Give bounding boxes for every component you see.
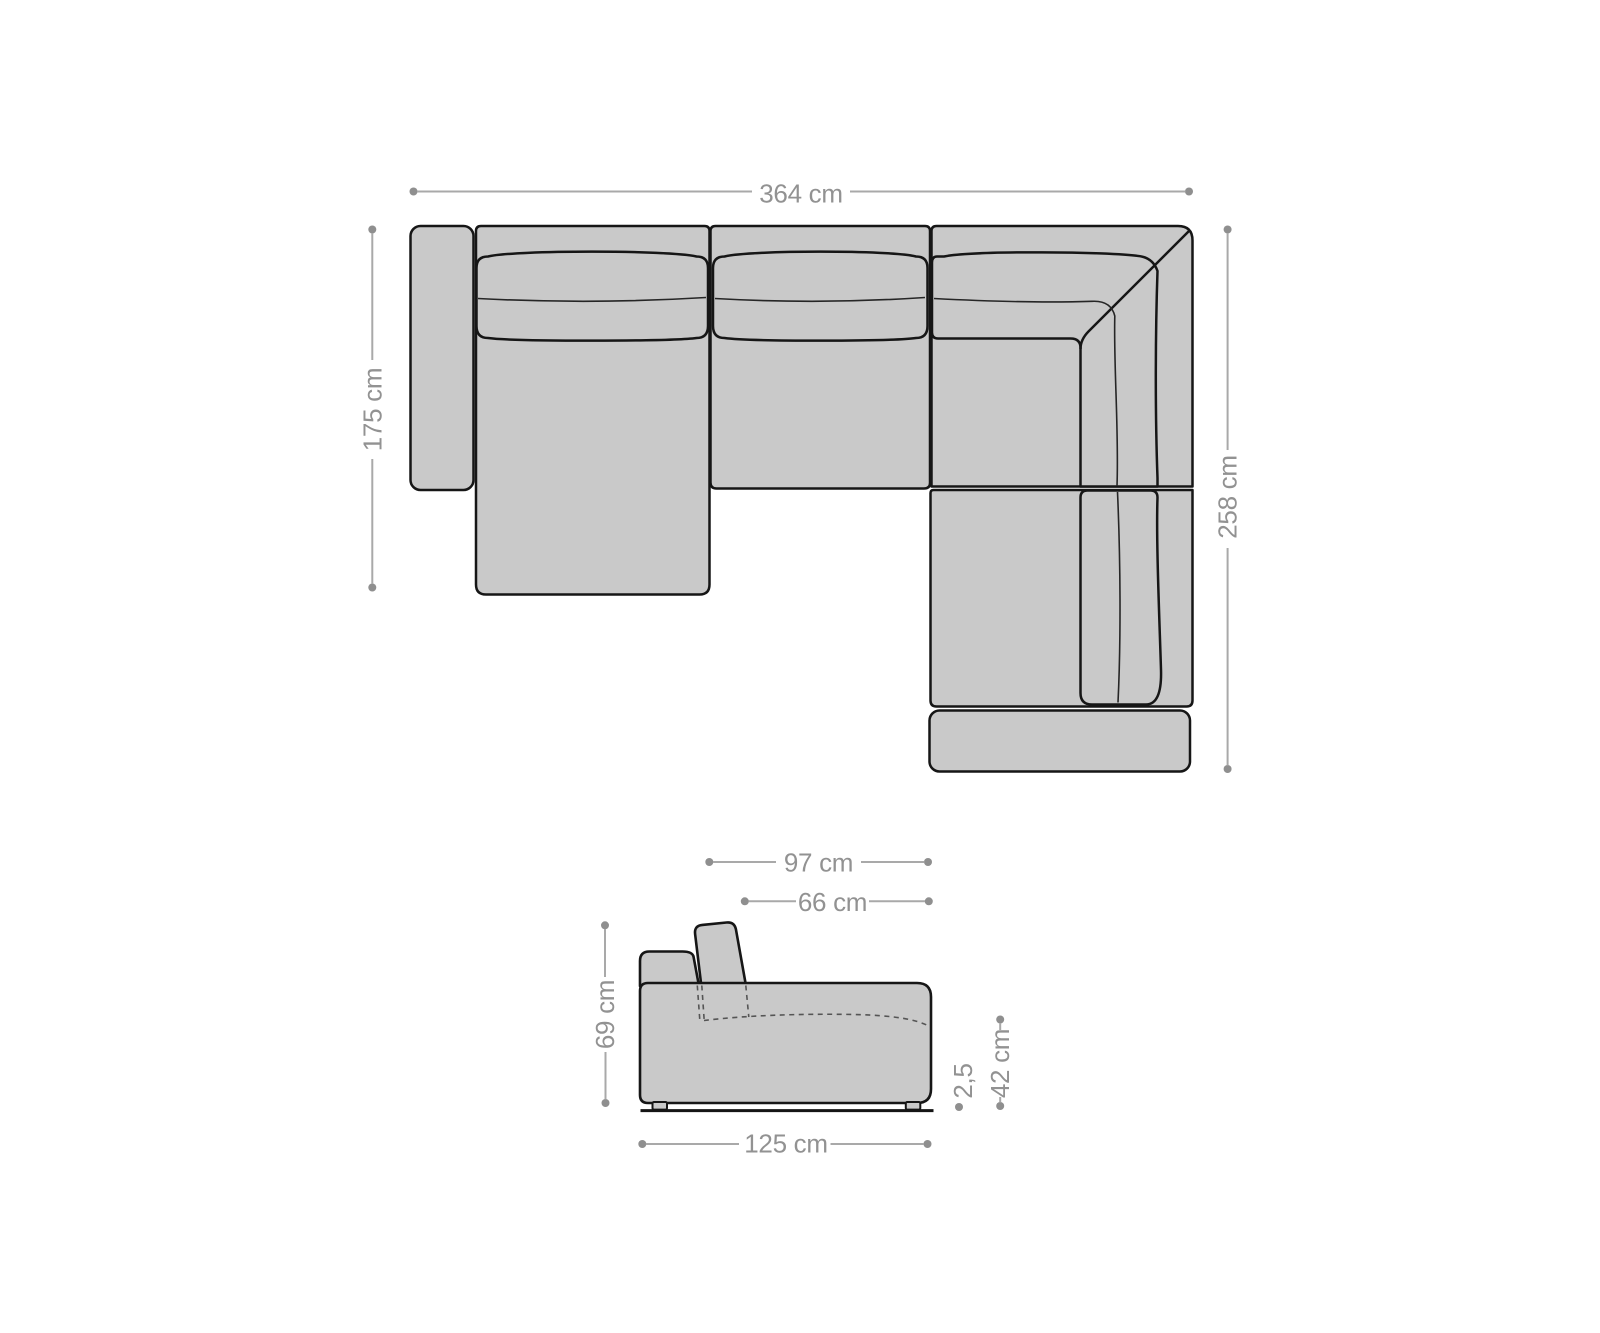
svg-text:364 cm: 364 cm [759,179,842,209]
svg-text:258 cm: 258 cm [1213,455,1243,538]
svg-text:66 cm: 66 cm [798,887,867,917]
svg-text:69 cm: 69 cm [590,980,620,1049]
svg-text:125 cm: 125 cm [744,1129,827,1159]
svg-text:175 cm: 175 cm [357,368,387,451]
svg-text:97 cm: 97 cm [784,848,853,878]
svg-text:2,5: 2,5 [948,1063,978,1098]
svg-text:42 cm: 42 cm [985,1029,1015,1098]
